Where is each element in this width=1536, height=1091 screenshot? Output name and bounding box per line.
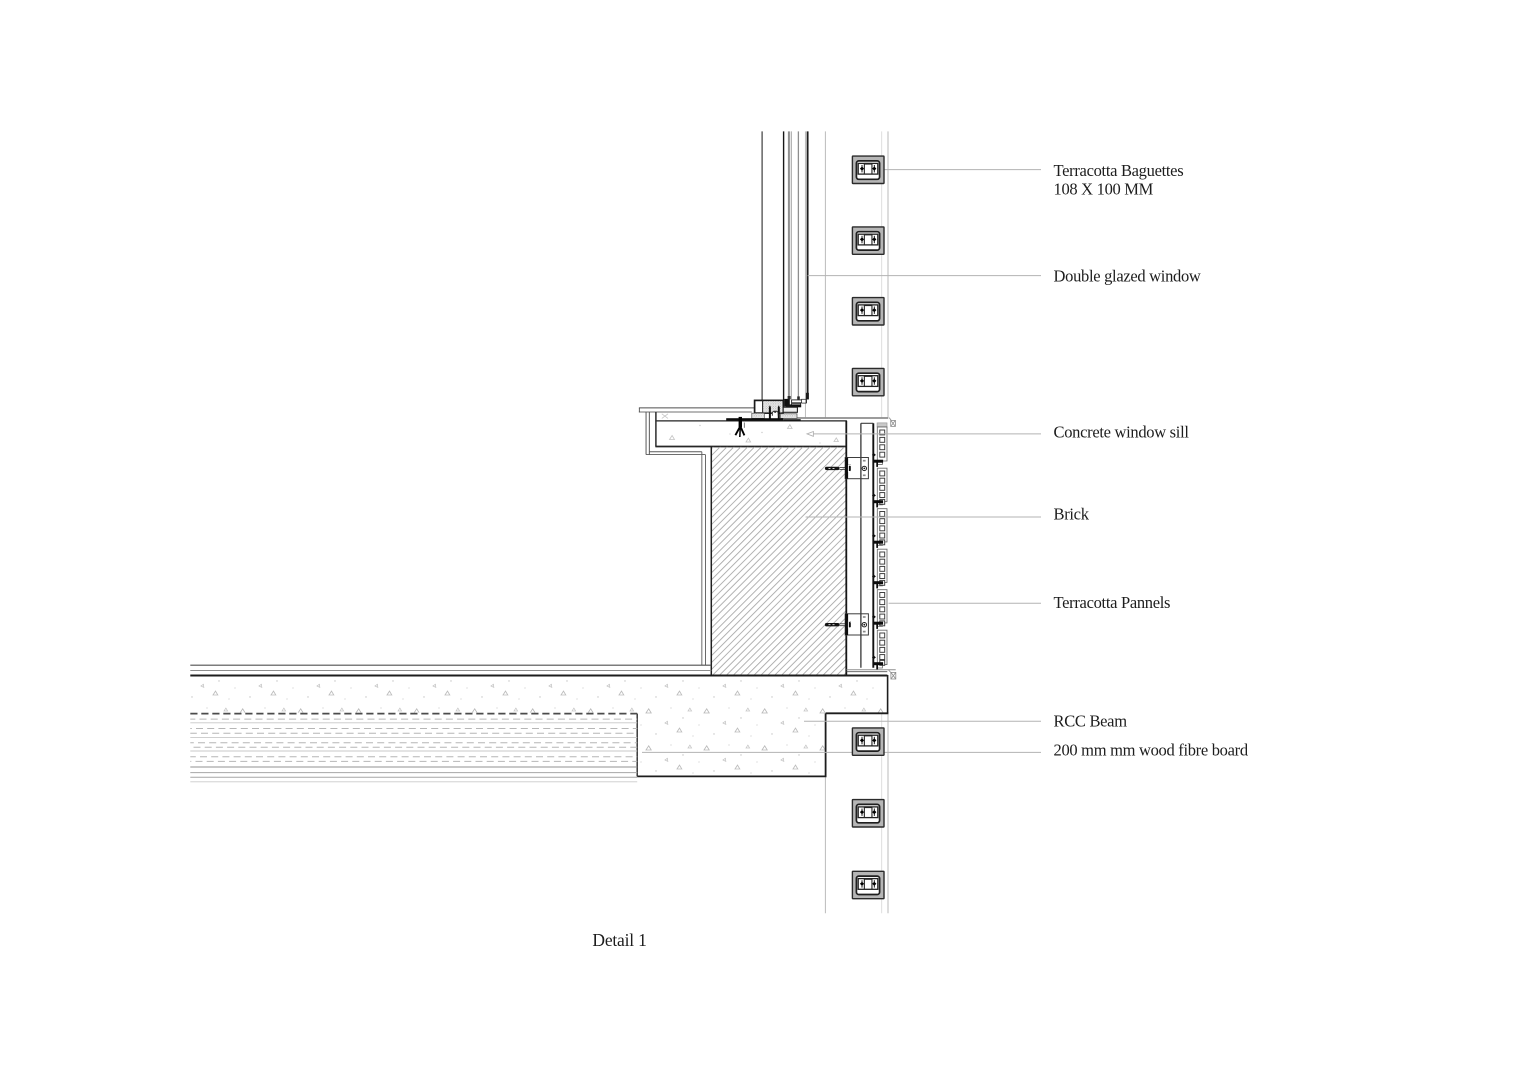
svg-text:Terracotta Baguettes: Terracotta Baguettes [1054,161,1184,180]
svg-text:Terracotta Pannels: Terracotta Pannels [1054,593,1171,612]
svg-text:108 X 100 MM: 108 X 100 MM [1054,179,1154,198]
svg-text:200 mm mm wood fibre board: 200 mm mm wood fibre board [1054,740,1249,759]
svg-text:Brick: Brick [1054,505,1090,524]
svg-text:Double glazed window: Double glazed window [1054,266,1201,285]
svg-text:RCC Beam: RCC Beam [1054,711,1128,730]
svg-text:Detail 1: Detail 1 [592,930,646,950]
svg-text:Concrete window sill: Concrete window sill [1054,423,1190,442]
